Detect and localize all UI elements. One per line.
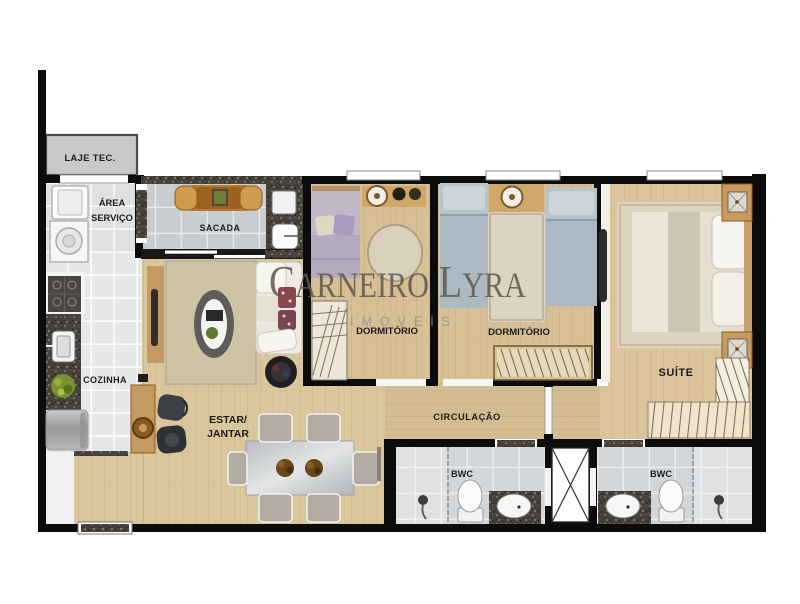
svg-text:LAJE TEC.: LAJE TEC. (64, 153, 115, 163)
svg-text:JANTAR: JANTAR (207, 428, 249, 440)
svg-text:ÁREA: ÁREA (99, 198, 126, 208)
svg-text:CIRCULAÇÃO: CIRCULAÇÃO (433, 412, 501, 422)
svg-text:SUÍTE: SUÍTE (659, 366, 694, 379)
svg-text:BWC: BWC (451, 469, 473, 479)
svg-text:DORMITÓRIO: DORMITÓRIO (488, 326, 550, 338)
svg-text:COZINHA: COZINHA (83, 375, 127, 385)
svg-text:BWC: BWC (650, 469, 672, 479)
svg-text:SACADA: SACADA (200, 223, 241, 233)
svg-text:SERVIÇO: SERVIÇO (91, 213, 133, 223)
svg-text:ESTAR/: ESTAR/ (209, 414, 247, 426)
svg-text:IMÓVEIS: IMÓVEIS (350, 313, 458, 329)
